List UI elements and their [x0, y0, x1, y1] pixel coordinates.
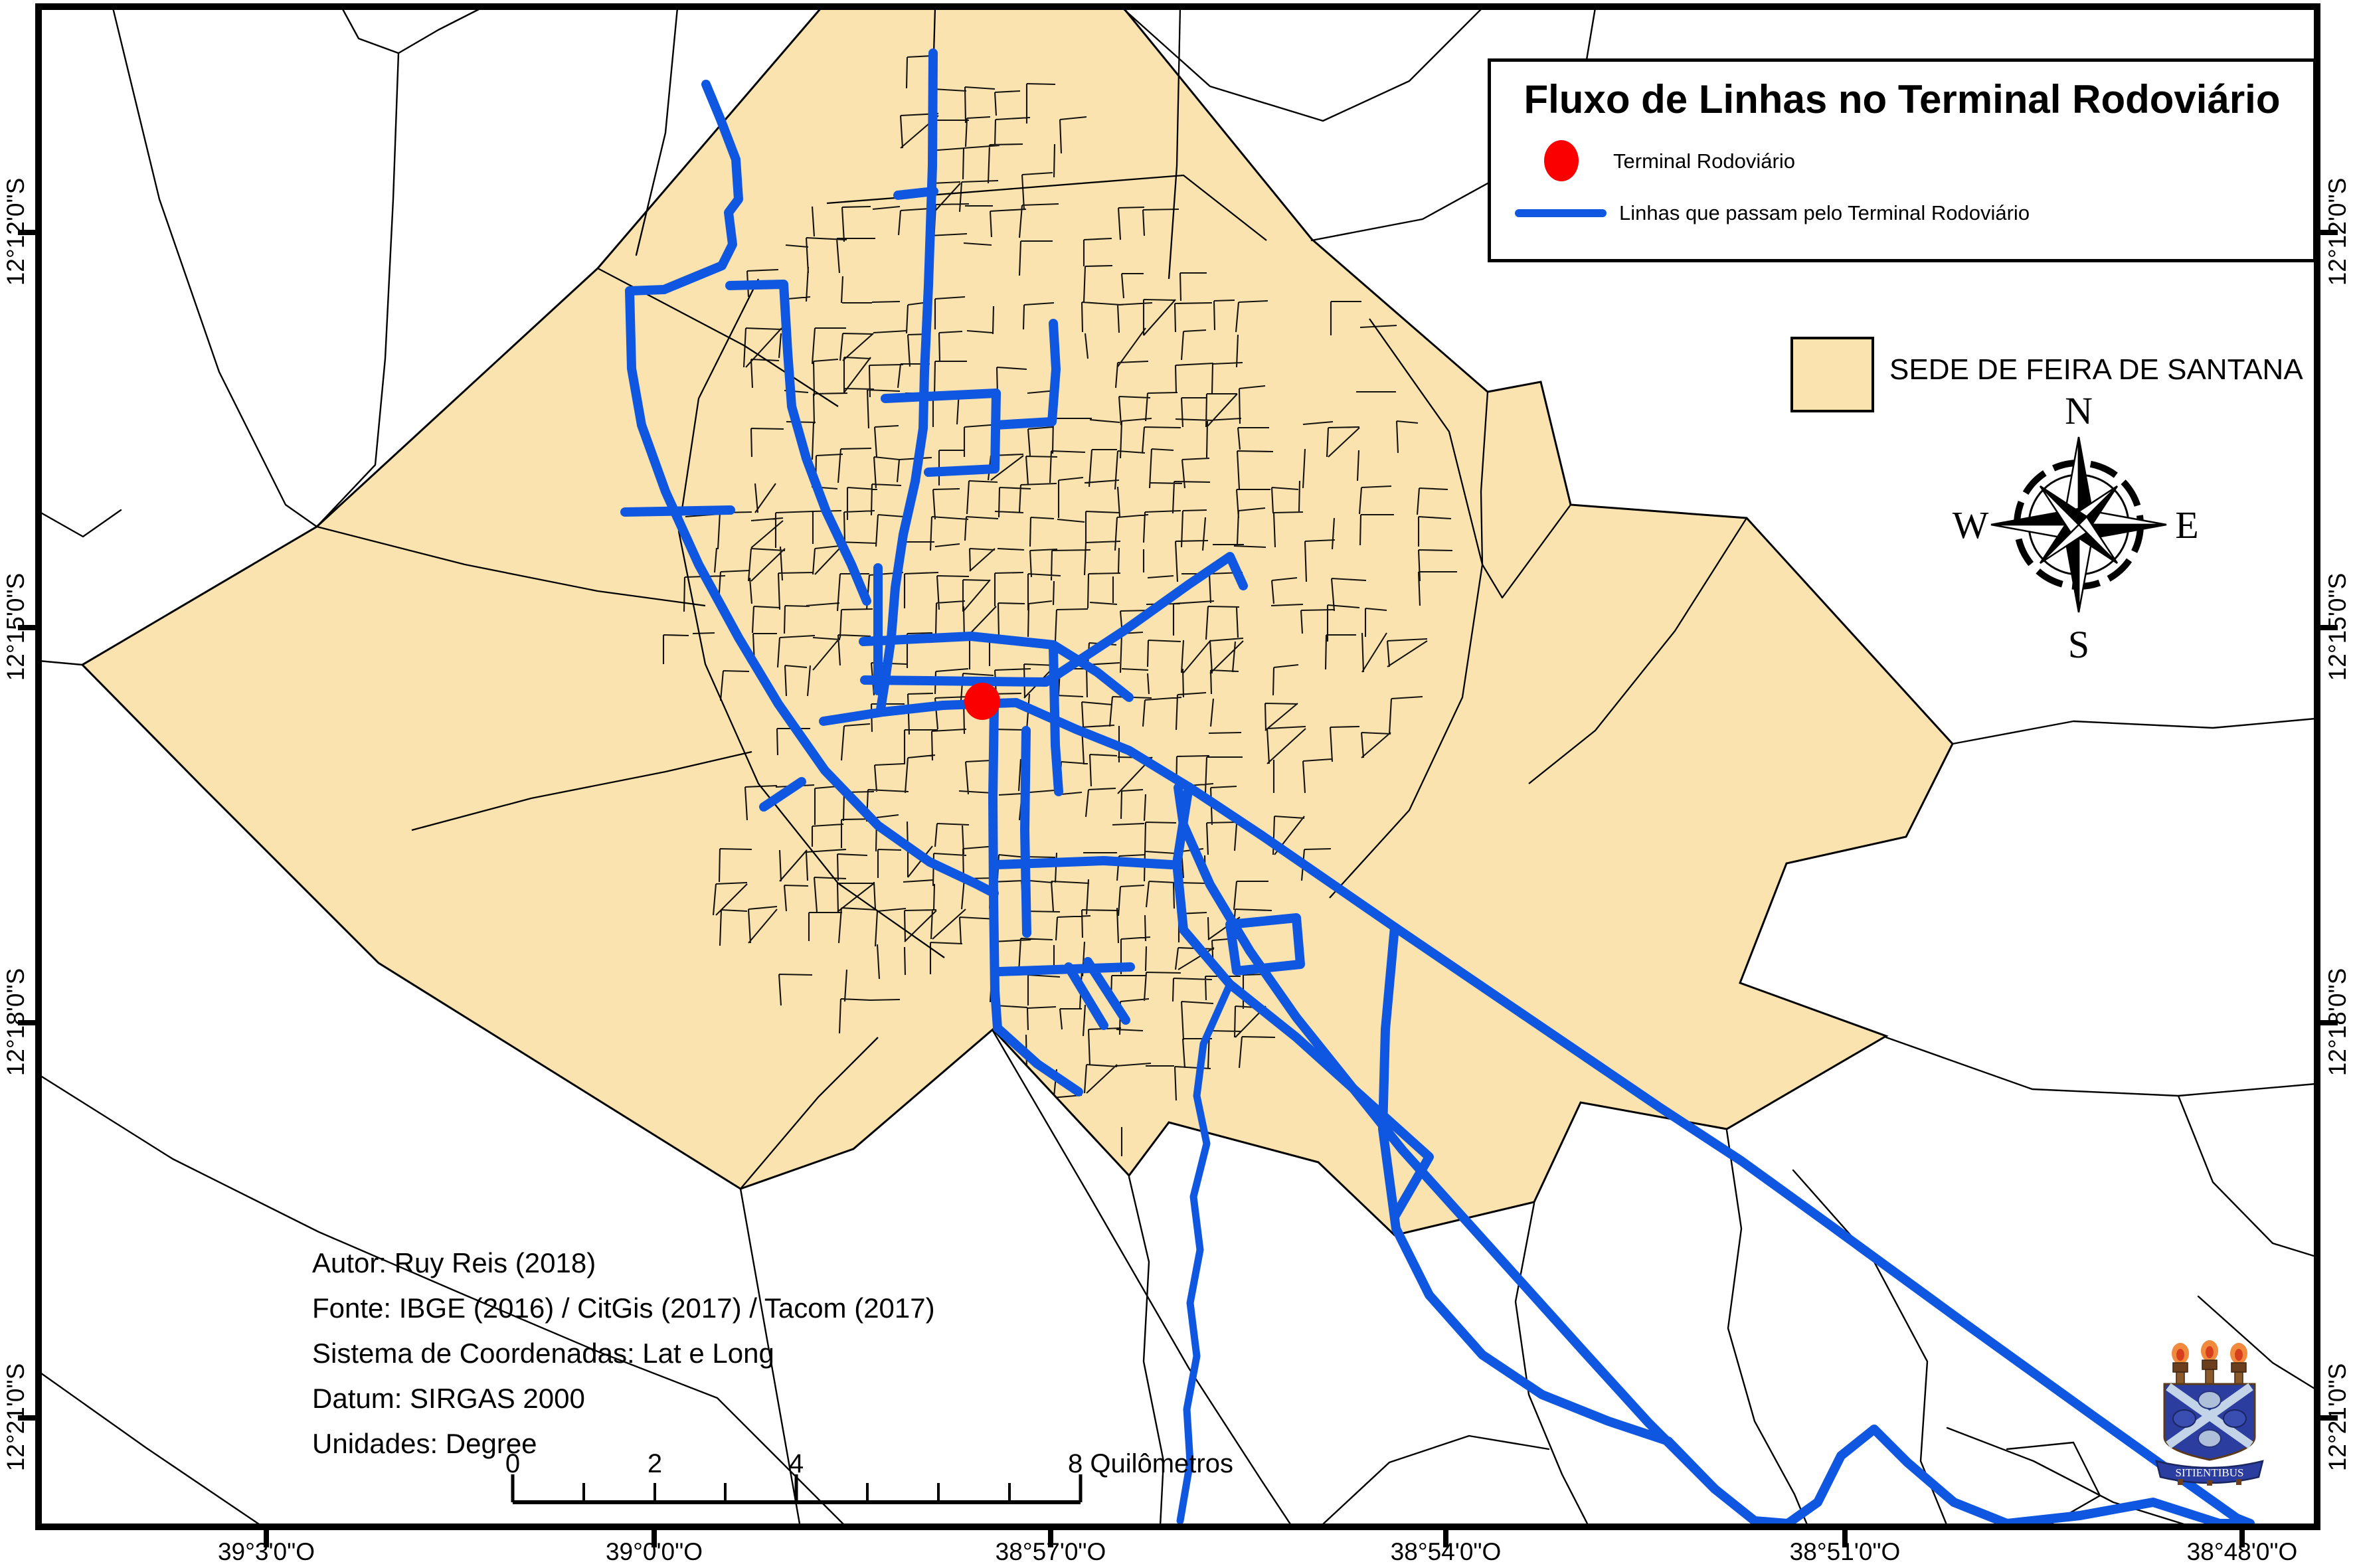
legend-terminal-label: Terminal Rodoviário — [1613, 149, 1795, 173]
motto-text: SITIENTIBUS — [2176, 1466, 2244, 1479]
compass-rose: N E S W — [1953, 389, 2199, 666]
map-layout-page: N E S W — [0, 0, 2353, 1568]
credit-units: Unidades: Degree — [312, 1421, 935, 1466]
torch-icons — [2172, 1340, 2247, 1384]
lat-label-left: 12°12'0"S — [2, 152, 30, 311]
lon-label: 38°48'0"O — [2187, 1538, 2298, 1566]
credit-author: Autor: Ruy Reis (2018) — [312, 1241, 935, 1286]
lat-label-right: 12°15'0"S — [2324, 547, 2352, 707]
title-legend-box: Fluxo de Linhas no Terminal Rodoviário T… — [1488, 58, 2316, 262]
lat-label-left: 12°15'0"S — [2, 547, 30, 707]
motto-banner: SITIENTIBUS — [2156, 1461, 2263, 1486]
lon-label: 39°0'0"O — [606, 1538, 703, 1566]
scale-label-2: 2 — [648, 1449, 662, 1479]
shield-icon — [2164, 1384, 2255, 1460]
lat-label-left: 12°21'0"S — [2, 1338, 30, 1497]
lon-label: 38°51'0"O — [1790, 1538, 1901, 1566]
credit-datum: Datum: SIRGAS 2000 — [312, 1376, 935, 1421]
sede-legend-label: SEDE DE FEIRA DE SANTANA — [1889, 353, 2303, 387]
university-crest-logo: SITIENTIBUS — [2156, 1340, 2263, 1486]
route-line-icon — [1515, 209, 1607, 217]
lat-label-right: 12°21'0"S — [2324, 1338, 2352, 1497]
compass-south-label: S — [2068, 623, 2089, 666]
scale-label-8km: 8 Quilômetros — [1068, 1449, 1233, 1479]
terminal-dot-icon — [1544, 140, 1579, 181]
scale-label-4: 4 — [789, 1449, 804, 1479]
compass-west-label: W — [1953, 503, 1989, 547]
map-title: Fluxo de Linhas no Terminal Rodoviário — [1491, 76, 2313, 122]
lat-label-right: 12°12'0"S — [2324, 152, 2352, 311]
lat-label-left: 12°18'0"S — [2, 942, 30, 1102]
lon-label: 38°57'0"O — [996, 1538, 1106, 1566]
lon-label: 38°54'0"O — [1391, 1538, 1502, 1566]
sede-swatch-icon — [1790, 337, 1874, 412]
lat-label-right: 12°18'0"S — [2324, 942, 2352, 1102]
compass-north-label: N — [2065, 389, 2093, 432]
credits-block: Autor: Ruy Reis (2018) Fonte: IBGE (2016… — [312, 1241, 935, 1466]
credit-source: Fonte: IBGE (2016) / CitGis (2017) / Tac… — [312, 1286, 935, 1331]
lon-label: 39°3'0"O — [218, 1538, 315, 1566]
terminal-marker — [964, 683, 1000, 720]
credit-coordinate-system: Sistema de Coordenadas: Lat e Long — [312, 1331, 935, 1376]
legend-routes-label: Linhas que passam pelo Terminal Rodoviár… — [1619, 201, 2030, 225]
scale-label-0: 0 — [505, 1449, 520, 1479]
compass-east-label: E — [2175, 503, 2198, 547]
